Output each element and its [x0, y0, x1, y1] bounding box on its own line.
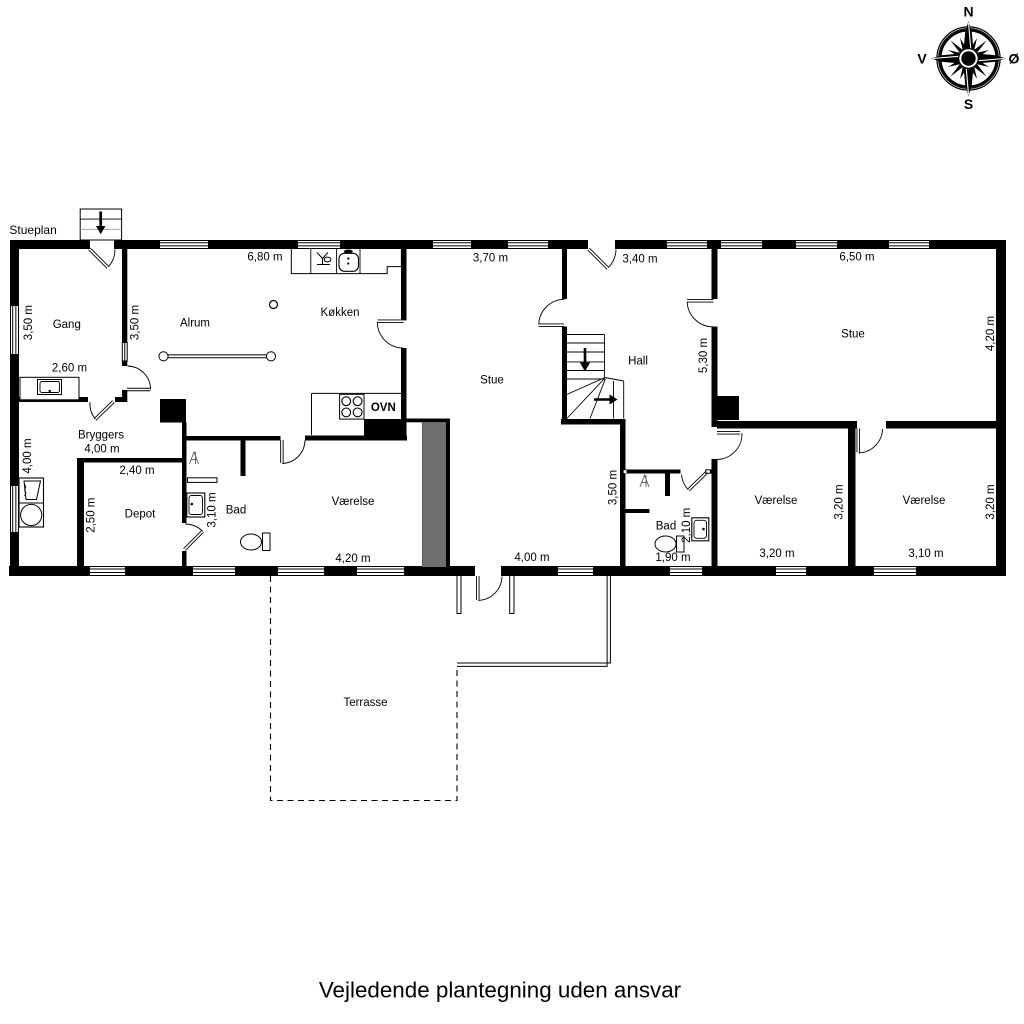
svg-text:Stue: Stue: [841, 329, 865, 341]
svg-text:3,20 m: 3,20 m: [834, 484, 846, 519]
svg-text:Hall: Hall: [628, 356, 648, 368]
svg-text:3,50 m: 3,50 m: [130, 305, 142, 340]
svg-text:Bryggers: Bryggers: [78, 430, 124, 442]
svg-text:Stue: Stue: [480, 375, 504, 387]
svg-text:3,50 m: 3,50 m: [608, 470, 620, 505]
svg-text:Vejledende plantegning uden an: Vejledende plantegning uden ansvar: [319, 977, 682, 1002]
svg-text:3,40 m: 3,40 m: [622, 254, 657, 266]
svg-text:3,10 m: 3,10 m: [908, 548, 943, 560]
svg-text:6,80 m: 6,80 m: [247, 252, 282, 264]
svg-text:3,50 m: 3,50 m: [23, 305, 35, 340]
svg-text:3,70 m: 3,70 m: [473, 253, 508, 265]
svg-text:3,20 m: 3,20 m: [985, 484, 997, 519]
svg-text:3,20 m: 3,20 m: [759, 548, 794, 560]
svg-text:Værelse: Værelse: [332, 496, 375, 508]
svg-text:Køkken: Køkken: [321, 307, 360, 319]
svg-text:Alrum: Alrum: [180, 318, 210, 330]
svg-text:4,20 m: 4,20 m: [985, 316, 997, 351]
svg-text:4,20 m: 4,20 m: [335, 553, 370, 565]
svg-text:2,40 m: 2,40 m: [119, 465, 154, 477]
svg-text:3,10 m: 3,10 m: [207, 492, 219, 527]
svg-text:4,00 m: 4,00 m: [22, 438, 34, 473]
svg-text:Ø: Ø: [1009, 51, 1020, 67]
svg-text:4,00 m: 4,00 m: [514, 552, 549, 564]
svg-text:Terrasse: Terrasse: [343, 697, 387, 709]
svg-text:4,00 m: 4,00 m: [84, 444, 119, 456]
svg-text:OVN: OVN: [371, 402, 396, 414]
svg-text:Depot: Depot: [125, 509, 156, 521]
svg-text:Bad: Bad: [656, 521, 676, 533]
svg-text:5,30 m: 5,30 m: [698, 338, 710, 373]
svg-text:2,60 m: 2,60 m: [52, 363, 87, 375]
svg-text:S: S: [964, 96, 973, 112]
svg-text:Gang: Gang: [53, 319, 81, 331]
svg-text:2,10 m: 2,10 m: [681, 508, 693, 543]
svg-text:Stueplan: Stueplan: [9, 223, 56, 237]
svg-text:N: N: [963, 4, 973, 20]
svg-text:2,50 m: 2,50 m: [86, 498, 98, 533]
svg-text:Værelse: Værelse: [903, 495, 946, 507]
svg-text:1,90 m: 1,90 m: [655, 552, 690, 564]
svg-text:Værelse: Værelse: [755, 495, 798, 507]
svg-text:V: V: [917, 51, 927, 67]
svg-text:6,50 m: 6,50 m: [839, 252, 874, 264]
svg-text:Bad: Bad: [226, 505, 246, 517]
